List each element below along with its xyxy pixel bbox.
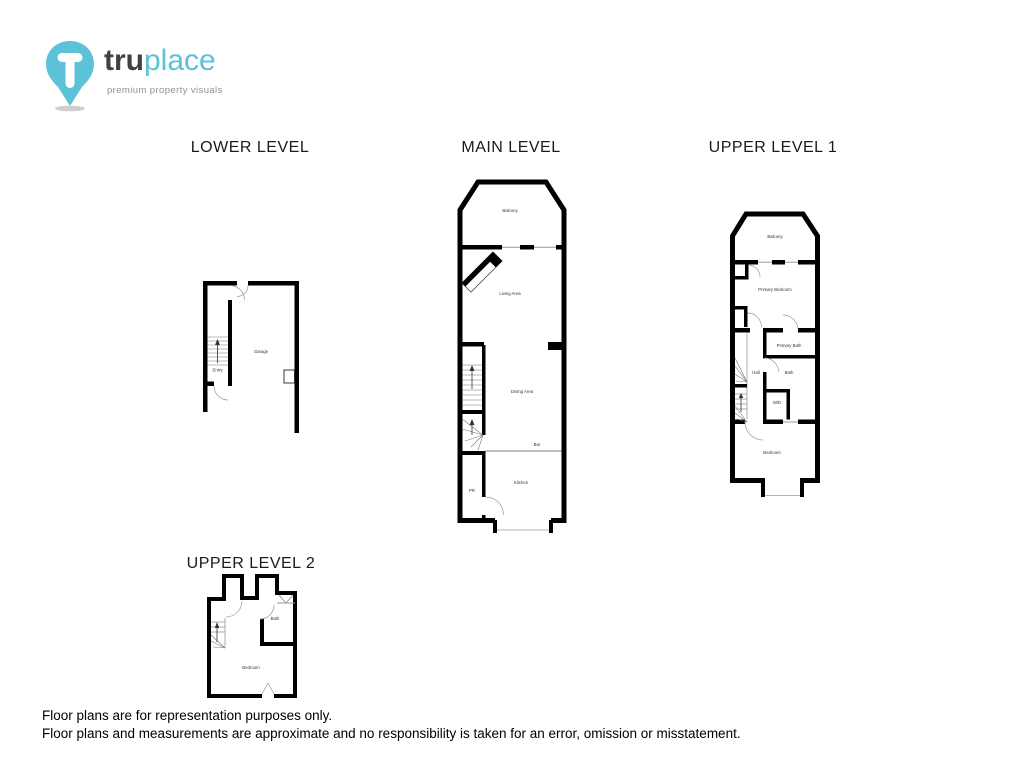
room-label-bath: Bath: [271, 616, 280, 621]
exterior-walls: [460, 182, 564, 523]
brand-tagline: premium property visuals: [107, 85, 223, 96]
stairs-icon: [208, 337, 229, 365]
brand-tru: tru: [104, 44, 144, 77]
brand-place: place: [144, 44, 216, 77]
floor-title-upper1: UPPER LEVEL 1: [653, 139, 893, 157]
stairs-icon: [211, 618, 225, 648]
truplace-pin-icon: [44, 40, 96, 112]
floorplan-upper2: Bath Bedroom: [202, 574, 302, 706]
room-label-garage: Garage: [254, 349, 269, 354]
room-label-bath: Bath: [785, 370, 794, 375]
truplace-logo: truplace premium property visuals: [44, 40, 304, 110]
room-label-primary-bath: Primary Bath: [777, 343, 802, 348]
room-label-bedroom: Bedroom: [242, 665, 260, 670]
floor-title-lower: LOWER LEVEL: [130, 139, 370, 157]
floor-title-main: MAIN LEVEL: [391, 139, 631, 157]
fireplace-icon: [462, 252, 502, 292]
brand-name: truplace: [104, 44, 216, 78]
room-label-balcony: Balcony: [767, 234, 783, 239]
room-label-balcony: Balcony: [502, 208, 518, 213]
pin-shadow: [55, 106, 85, 112]
disclaimer-line2: Floor plans and measurements are approxi…: [42, 725, 741, 743]
stairs-icon: [462, 365, 483, 450]
disclaimer: Floor plans are for representation purpo…: [42, 707, 741, 742]
door-arcs: [226, 601, 274, 619]
floor-title-upper2: UPPER LEVEL 2: [131, 555, 371, 573]
room-label-primary-bedroom: Primary Bedroom: [758, 287, 792, 292]
room-label-entry: Entry: [212, 368, 223, 373]
floorplan-lower: Entry Garage: [201, 279, 301, 437]
floorplan-main: Balcony Living Area Dining Area Bar Kitc…: [456, 179, 568, 539]
pin-letter-t-stem: [66, 55, 75, 88]
floorplan-page: truplace premium property visuals LOWER …: [0, 0, 1024, 768]
room-label-kitchen: Kitchen: [514, 480, 529, 485]
room-label-pr: PR: [469, 488, 475, 493]
room-label-dining-area: Dining Area: [511, 389, 534, 394]
room-label-bedroom: Bedroom: [763, 450, 781, 455]
disclaimer-line1: Floor plans are for representation purpo…: [42, 707, 741, 725]
floorplan-upper1: Balcony Primary Bedroom Primary Bath Hal…: [725, 210, 825, 504]
room-label-wd: W/D: [773, 400, 781, 405]
room-label-hall: Hall: [752, 370, 759, 375]
walls: [730, 260, 820, 497]
exterior-walls: [733, 214, 818, 483]
room-label-bar: Bar: [534, 442, 541, 447]
utility-box: [284, 370, 295, 383]
exterior-walls: [209, 576, 295, 696]
room-label-living-area: Living Area: [499, 291, 521, 296]
door-arcs: [486, 497, 504, 515]
stairs-icon: [735, 332, 747, 422]
